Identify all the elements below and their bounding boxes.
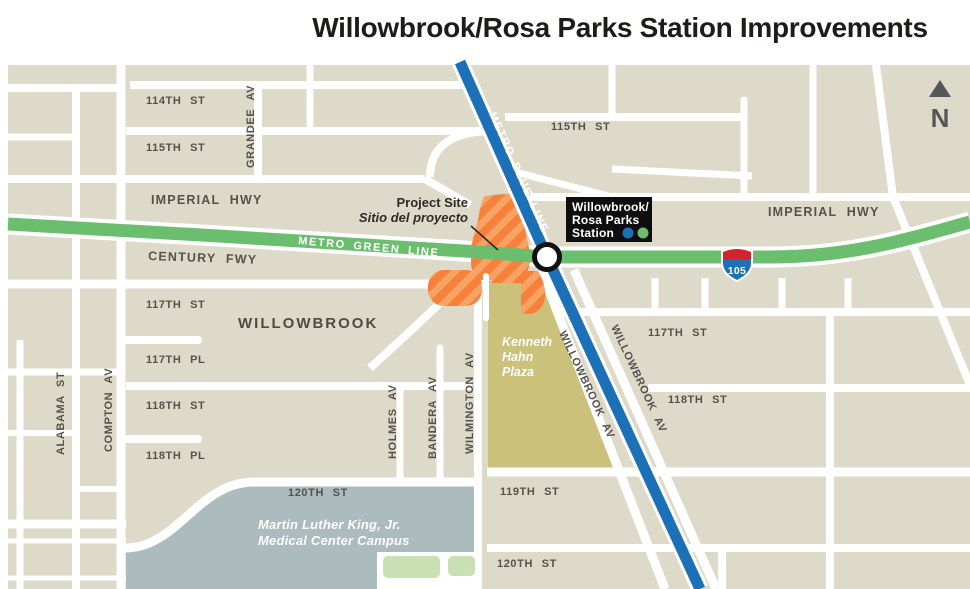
- street-label-holmes-av: HOLMES AV: [387, 384, 399, 459]
- street-label-120th-st-east: 120TH ST: [497, 558, 557, 570]
- street-label-117th-st-west: 117TH ST: [146, 299, 205, 311]
- plaza-label-line1: Kenneth: [502, 335, 552, 349]
- street-label-imperial-hwy-west: IMPERIAL HWY: [151, 193, 263, 207]
- shield-number: 105: [728, 265, 746, 277]
- station-name-line2: Rosa Parks: [572, 213, 639, 227]
- park-block: [448, 556, 475, 576]
- street-label-119th-st: 119TH ST: [500, 486, 559, 498]
- district-label-willowbrook: WILLOWBROOK: [238, 315, 378, 332]
- station-name-line1: Willowbrook/: [572, 200, 649, 214]
- street-label-alabama-st: ALABAMA ST: [55, 372, 67, 455]
- plaza-label-line2: Hahn: [502, 350, 534, 364]
- street-label-115th-st-west: 115TH ST: [146, 142, 205, 154]
- street-label-115th-st-east: 115TH ST: [551, 121, 610, 133]
- street-label-120th-st-west: 120TH ST: [288, 487, 348, 499]
- blue-line-dot: [623, 228, 634, 239]
- campus-label-line1: Martin Luther King, Jr.: [258, 517, 401, 532]
- street-label-118th-st-west: 118TH ST: [146, 400, 205, 412]
- street-label-117th-pl: 117TH PL: [146, 354, 205, 366]
- campus-label: Martin Luther King, Jr. Medical Center C…: [258, 517, 410, 548]
- map-page: Willowbrook/Rosa Parks Station Improveme…: [0, 0, 970, 589]
- project-site-label-es: Sitio del proyecto: [359, 210, 468, 225]
- street-label-bandera-av: BANDERA AV: [427, 376, 439, 459]
- plaza-label-line3: Plaza: [502, 365, 534, 379]
- campus-label-line2: Medical Center Campus: [258, 533, 410, 548]
- green-line-dot: [638, 228, 649, 239]
- map-canvas: 105 114TH ST 115TH ST GRANDEE AV IMPERIA…: [0, 0, 970, 589]
- street-label-118th-st-east: 118TH ST: [668, 394, 727, 406]
- north-arrow-label: N: [931, 103, 950, 133]
- street-label-grandee-av: GRANDEE AV: [245, 85, 257, 168]
- street-label-compton-av: COMPTON AV: [103, 368, 115, 452]
- street-label-114th-st: 114TH ST: [146, 95, 205, 107]
- street-label-118th-pl: 118TH PL: [146, 450, 205, 462]
- park-block: [383, 556, 440, 578]
- station-name-box: Willowbrook/ Rosa Parks Station: [566, 197, 652, 242]
- station-name-line3: Station: [572, 226, 614, 240]
- project-site-label-en: Project Site: [396, 195, 468, 210]
- station-marker: [535, 245, 560, 270]
- street-label-imperial-hwy-east: IMPERIAL HWY: [768, 205, 880, 219]
- street-label-wilmington-av: WILMINGTON AV: [464, 352, 476, 454]
- street-label-117th-st-east: 117TH ST: [648, 327, 707, 339]
